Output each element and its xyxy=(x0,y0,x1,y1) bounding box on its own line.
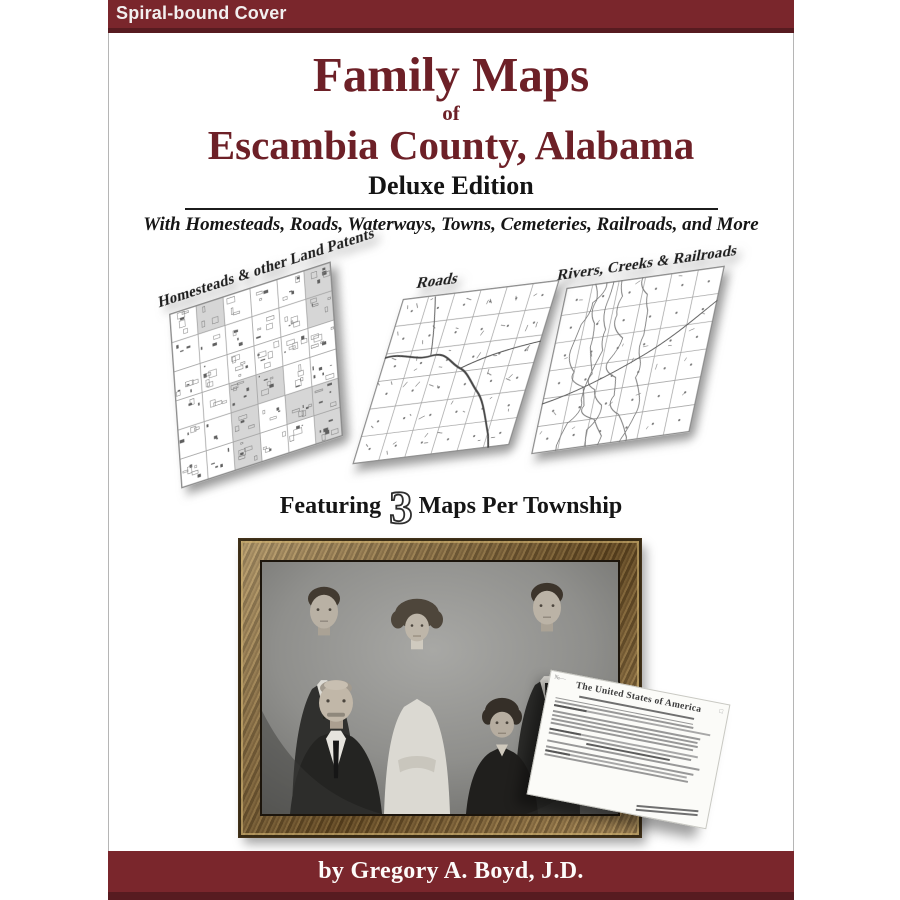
format-banner-label: Spiral-bound Cover xyxy=(108,0,794,24)
title-edition: Deluxe Edition xyxy=(109,173,793,199)
certificate-corner-mark-right: □ xyxy=(719,709,724,716)
title-region: Escambia County, Alabama xyxy=(109,125,793,166)
title-main: Family Maps xyxy=(109,50,793,100)
rivers-map-graphic xyxy=(531,266,725,455)
title-divider-rule xyxy=(185,208,718,210)
map-label-roads: Roads xyxy=(414,271,460,294)
map-thumbnail-roads: Roads xyxy=(352,280,559,465)
map-thumbnail-rivers: Rivers, Creeks & Railroads xyxy=(531,266,725,455)
featuring-prefix: Featuring xyxy=(280,493,381,519)
format-banner: Spiral-bound Cover xyxy=(108,0,794,33)
roads-map-graphic xyxy=(352,280,559,465)
title-block: Family Maps of Escambia County, Alabama … xyxy=(109,50,793,236)
book-cover: Spiral-bound Cover Family Maps of Escamb… xyxy=(108,0,794,900)
certificate-corner-mark: №— xyxy=(554,675,567,683)
featuring-line: Featuring3Maps Per Township xyxy=(109,481,793,535)
featuring-count: 3 xyxy=(389,481,413,535)
title-subtitle: With Homesteads, Roads, Waterways, Towns… xyxy=(109,214,793,236)
author-byline: by Gregory A. Boyd, J.D. xyxy=(108,851,794,891)
book-cover-page: { "banner": { "label": "Spiral-bound Cov… xyxy=(0,0,900,900)
featuring-suffix: Maps Per Township xyxy=(419,493,623,519)
map-thumbnail-homesteads: Homesteads & other Land Patents xyxy=(169,261,343,488)
certificate-signature-lines xyxy=(636,798,699,819)
author-bar: by Gregory A. Boyd, J.D. xyxy=(108,851,794,900)
title-connector: of xyxy=(109,103,793,124)
